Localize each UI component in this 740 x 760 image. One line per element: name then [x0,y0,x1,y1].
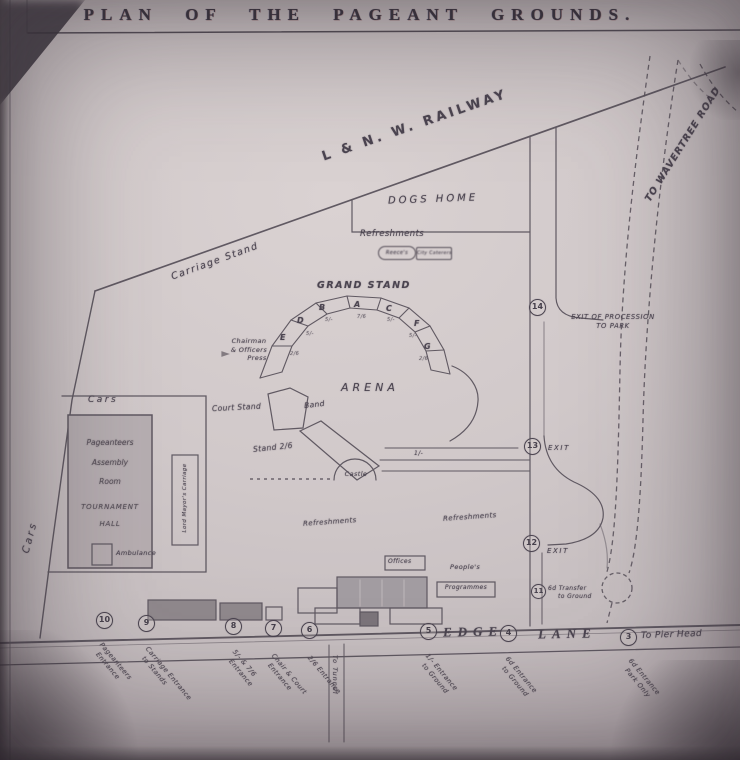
marker-7: 7 [265,620,282,637]
marker-3: 3 [620,629,637,646]
marker-13: 13 [524,438,541,455]
pier-head-label: To Pier Head [641,629,702,641]
stand-price: 5/- [325,317,333,323]
tournament-hall-label: HALL [70,520,150,528]
page-title: PLAN OF THE PAGEANT GROUNDS. [30,5,690,25]
stand-price: 7/6 [357,314,366,320]
programmes-label: Programmes [438,584,494,591]
title-rule [28,30,740,33]
stand-price: 2/6 [290,351,299,357]
edge-label: EDGE [443,623,503,640]
stand-section-d: D [297,316,304,325]
arena-label: ARENA [341,381,399,394]
assembly-room-label: Room [70,477,150,486]
peoples-label: People's [450,563,480,571]
wavertree-road-dashes [602,56,738,623]
lane-label: LANE [538,625,597,642]
marker-6: 6 [301,622,318,639]
marker-9: 9 [138,615,155,632]
band-enclosure [268,388,308,430]
cars-label-top: Cars [88,395,118,405]
offices-label: Offices [388,558,412,565]
tournament-hall-label: TOURNAMENT [70,503,150,511]
marker-10: 10 [96,612,113,629]
exit-12-label: EXIT [547,547,569,555]
plan-linework [0,0,740,760]
dogs-home-outline [352,200,530,232]
shilling-label: 1/- [414,450,423,457]
grandstand-title: GRAND STAND [312,280,416,291]
stand-section-c: C [386,304,392,313]
exit-13-label: EXIT [548,444,570,452]
stand-price: 2/6 [419,356,428,362]
transfer-label: 6d Transfer to Ground [548,585,618,601]
stand-price: 5/- [306,331,314,337]
stand-section-f: F [414,319,420,328]
kiosk-left: Reece's [378,246,416,260]
stand-section-g: G [424,342,431,351]
stand-price: 5/- [409,333,417,339]
marker-12: 12 [523,535,540,552]
u-turn-road [544,436,603,545]
scanned-map-photo: PLAN OF THE PAGEANT GROUNDS. L & N. W. R… [0,0,740,760]
stand-section-b: B [319,303,326,312]
refreshments-top-label: Refreshments [360,229,424,239]
stand-section-e: E [280,333,286,342]
marker-5: 5 [420,623,437,640]
marker-4: 4 [500,625,517,642]
marker-8: 8 [225,618,242,635]
marker-14: 14 [529,299,546,316]
stand-price: 5/- [387,317,395,323]
kiosk-right: City Caterers [416,247,452,260]
bottom-buildings [148,556,495,626]
marker-11: 11 [531,584,546,599]
assembly-room-label: Assembly [70,458,150,467]
exit-procession-label: EXIT OF PROCESSION TO PARK [558,313,668,331]
castle-label: Castle [338,470,374,478]
chairman-press-label: Chairman & Officers Press [218,337,280,363]
ambulance-label: Ambulance [116,549,156,557]
assembly-room-label: Pageanteers [70,438,150,447]
arena-curve [450,366,478,441]
lord-mayor-label: Lord Mayor's Carriage [182,458,188,538]
stand-section-a: A [354,300,361,309]
